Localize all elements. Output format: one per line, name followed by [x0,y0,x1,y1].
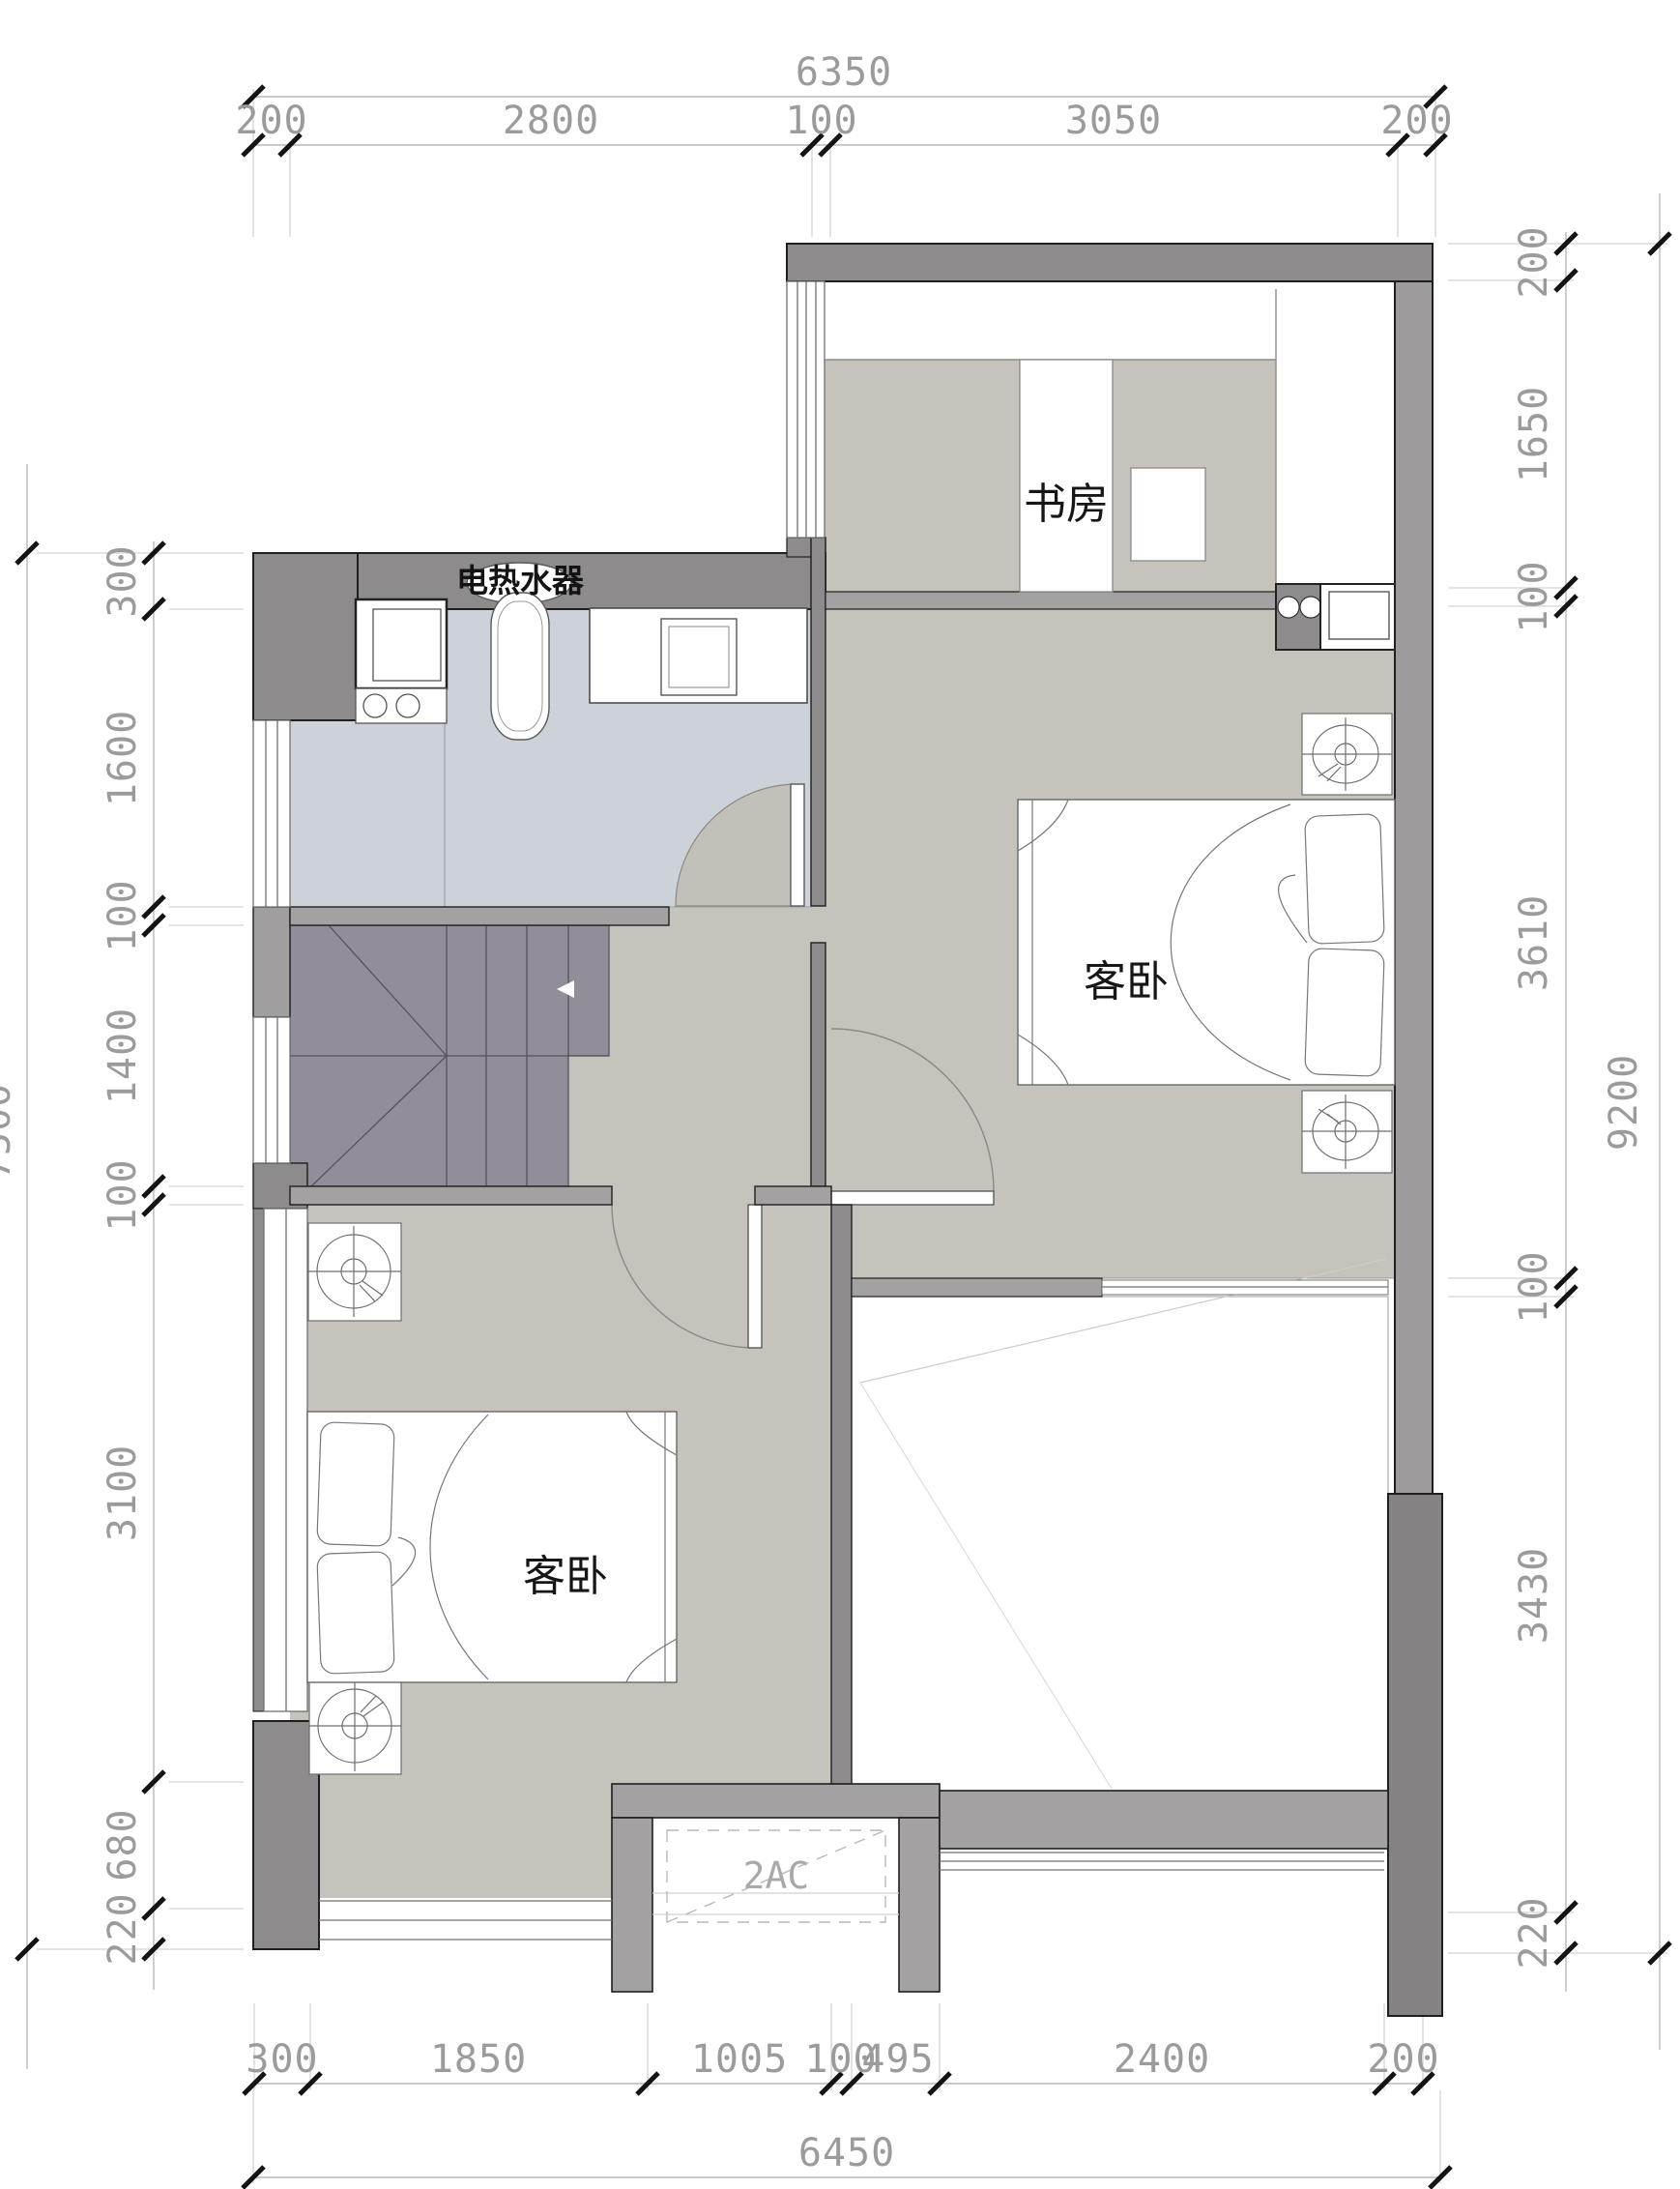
toilet-bowl-inner [498,601,542,731]
dim-right-1: 1650 [1512,386,1556,482]
terrace-floor [852,1297,1388,1791]
study-desk [1020,360,1113,592]
window-bedroom-terrace [1102,1280,1388,1295]
dim-bot-0: 300 [246,2037,318,2082]
dim-left-2: 100 [101,879,145,951]
bathroom-door-leaf [791,784,804,906]
window-stairs-left [253,1017,290,1163]
water-heater-label: 电热水器 [456,562,585,599]
wall-door-stub [755,1186,831,1205]
study-label: 书房 [1024,480,1109,529]
dim-left-overall: 7500 [0,1083,19,1180]
dim-right-5: 3430 [1512,1547,1556,1644]
wall-stairs-bottom [290,1186,612,1205]
dim-left-3: 1400 [101,1007,145,1104]
wall-ac-left-pier [612,1818,652,1992]
dim-left-5: 3100 [101,1445,145,1541]
wall-bath-corner [253,553,358,720]
window-study-left [787,281,825,538]
wall-terrace-bottom [940,1791,1388,1849]
dim-right-overall: 9200 [1602,1054,1646,1151]
kitchenette-sink [1329,592,1389,639]
dim-bot-5: 2400 [1114,2037,1210,2082]
bedroom-right-label: 客卧 [1084,957,1169,1007]
bedroom-right-door-leaf [831,1191,994,1205]
dim-top-3: 3050 [1065,99,1162,143]
wall-study-divider [826,592,1276,609]
wall-bath-bottom [290,907,669,925]
dim-right-4: 100 [1512,1250,1556,1323]
dim-left-1: 1600 [101,710,145,806]
faucet-knob-right [396,694,420,717]
dim-bot-1: 1850 [430,2037,527,2082]
wall-ac-top [612,1784,940,1818]
kitchen-sink-basin [373,609,441,681]
floor-plan-page: 书房 客卧 客卧 电热水器 2AC 6350 200 2800 100 3050… [0,0,1680,2189]
ac-unit-bedroom-left-bottom [309,1678,401,1774]
study-chair [1131,468,1205,561]
dim-bot-4: 495 [861,2037,934,2082]
wall-right [1395,281,1433,1494]
bed-left [307,1412,677,1682]
stove-burner-right [1300,597,1321,618]
ac-platform-label: 2AC [743,1854,810,1897]
bedroom-left-door-leaf [748,1205,762,1348]
dim-top-4: 200 [1380,99,1453,143]
floor-plan-drawing: 书房 客卧 客卧 电热水器 2AC 6350 200 2800 100 3050… [0,0,1680,2189]
dim-left-0: 300 [101,544,145,617]
dim-right-3: 3610 [1512,894,1556,991]
dim-right-2: 100 [1512,560,1556,632]
wall-left-mid [253,907,290,1017]
wall-center-upper [811,538,826,906]
wall-right-pier [1388,1494,1442,2016]
dim-top-2: 100 [785,99,857,143]
dim-bot-2: 1005 [691,2037,788,2082]
wall-center-lower [811,943,826,1186]
dim-right-0: 200 [1512,225,1556,298]
stove-burner-left [1278,597,1299,618]
vanity-basin-inner [669,627,729,687]
ac-unit-bedroom-right-top [1302,714,1392,795]
bed-right [1018,800,1395,1085]
faucet-knob-left [363,694,387,717]
ac-unit-bedroom-right-bottom [1302,1091,1392,1173]
ac-unit-bedroom-left-top [308,1223,401,1321]
dim-bot-6: 200 [1367,2037,1439,2082]
window-bath-left [253,720,290,907]
wall-top [787,244,1433,281]
dim-left-7: 220 [101,1892,145,1965]
wall-left-edge [253,1209,264,1711]
dim-left-6: 680 [101,1808,145,1881]
wall-ac-right-pier [899,1818,940,1992]
window-terrace-bottom [940,1853,1384,1870]
wall-bedroom-terrace [852,1278,1102,1297]
dim-left-4: 100 [101,1158,145,1231]
bedroom-left-label: 客卧 [523,1552,608,1601]
window-bedroom-left [264,1209,307,1711]
dim-right-6: 220 [1512,1896,1556,1969]
dim-bottom-overall: 6450 [798,2131,895,2175]
wall-bedroom-left-right [831,1205,852,1789]
dim-top-0: 200 [235,99,307,143]
dim-top-overall: 6350 [796,50,892,95]
window-bedroom-left-bottom [319,1901,612,1940]
dim-top-1: 2800 [503,99,599,143]
